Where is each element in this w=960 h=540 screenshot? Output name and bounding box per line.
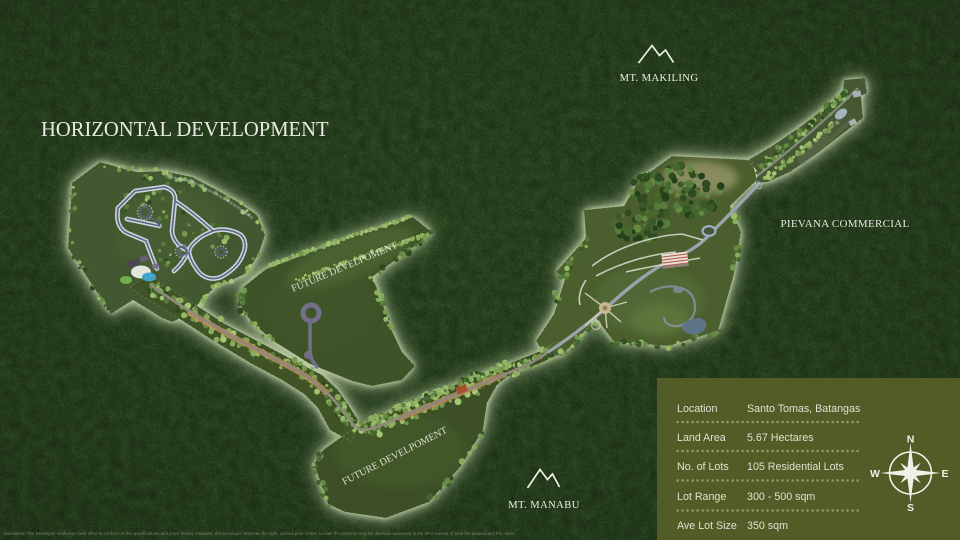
svg-text:MT. MAKILING: MT. MAKILING — [620, 73, 699, 84]
svg-text:No. of Lots: No. of Lots — [677, 461, 729, 473]
svg-text:Disclaimer: The Developer shal: Disclaimer: The Developer shall exert be… — [4, 531, 515, 536]
svg-text:5.67 Hectares: 5.67 Hectares — [747, 432, 814, 444]
svg-text:N: N — [907, 434, 915, 446]
svg-text:S: S — [907, 502, 914, 514]
svg-text:Santo Tomas, Batangas: Santo Tomas, Batangas — [747, 403, 860, 415]
svg-text:E: E — [941, 468, 948, 480]
svg-text:W: W — [870, 468, 880, 480]
svg-text:Land Area: Land Area — [677, 432, 726, 444]
svg-text:PIEVANA COMMERCIAL: PIEVANA COMMERCIAL — [781, 218, 910, 230]
svg-text:MT. MANABU: MT. MANABU — [508, 500, 580, 511]
svg-text:Location: Location — [677, 403, 717, 415]
svg-text:300 - 500 sqm: 300 - 500 sqm — [747, 491, 815, 503]
svg-text:HORIZONTAL DEVELOPMENT: HORIZONTAL DEVELOPMENT — [41, 119, 329, 141]
svg-text:Lot Range: Lot Range — [677, 491, 726, 503]
svg-text:105 Residential Lots: 105 Residential Lots — [747, 461, 844, 473]
svg-text:Ave Lot Size: Ave Lot Size — [677, 520, 737, 532]
svg-text:350 sqm: 350 sqm — [747, 520, 788, 532]
